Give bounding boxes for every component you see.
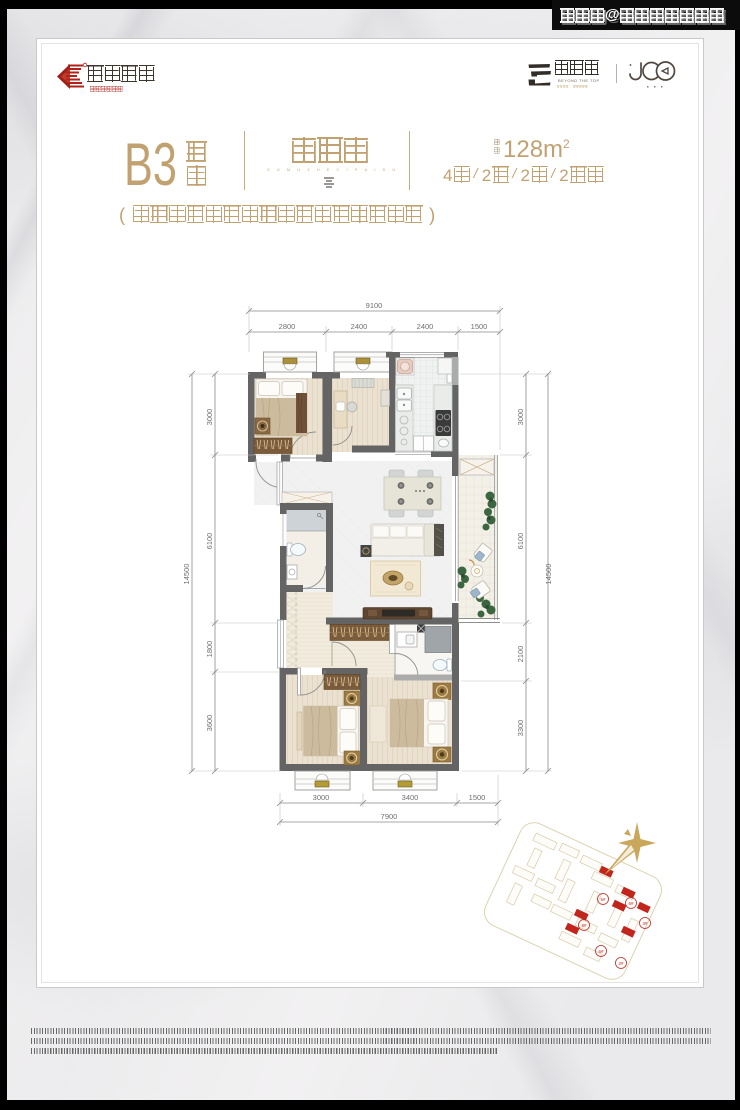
svg-text:3#: 3# bbox=[642, 921, 648, 926]
svg-text:2400: 2400 bbox=[417, 322, 434, 331]
svg-text:3000: 3000 bbox=[313, 793, 330, 802]
svg-text:1500: 1500 bbox=[471, 322, 488, 331]
svg-text:8#: 8# bbox=[581, 923, 587, 928]
svg-text:2100: 2100 bbox=[516, 646, 525, 663]
svg-text:14500: 14500 bbox=[544, 564, 553, 585]
svg-text:7900: 7900 bbox=[381, 812, 398, 821]
svg-text:2400: 2400 bbox=[351, 322, 368, 331]
svg-text:3600: 3600 bbox=[205, 715, 214, 732]
svg-text:1500: 1500 bbox=[469, 793, 486, 802]
svg-text:9100: 9100 bbox=[366, 301, 383, 310]
svg-text:6100: 6100 bbox=[205, 533, 214, 550]
svg-text:14500: 14500 bbox=[182, 564, 191, 585]
svg-text:3400: 3400 bbox=[402, 793, 419, 802]
svg-text:1800: 1800 bbox=[205, 641, 214, 658]
svg-text:6#: 6# bbox=[598, 949, 604, 954]
svg-text:3300: 3300 bbox=[516, 720, 525, 737]
svg-text:6100: 6100 bbox=[516, 533, 525, 550]
svg-text:3000: 3000 bbox=[516, 409, 525, 426]
svg-text:6#: 6# bbox=[628, 901, 634, 906]
svg-text:3000: 3000 bbox=[205, 409, 214, 426]
svg-text:5#: 5# bbox=[600, 897, 606, 902]
svg-text:2#: 2# bbox=[618, 961, 624, 966]
svg-text:2800: 2800 bbox=[279, 322, 296, 331]
